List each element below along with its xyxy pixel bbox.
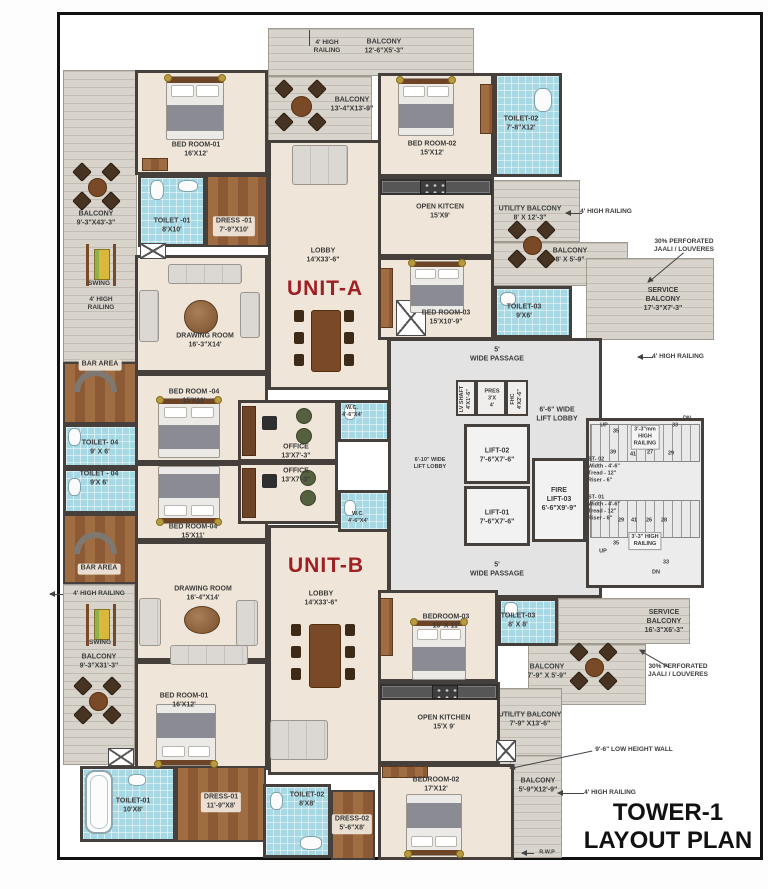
leader-line-3 (50, 594, 63, 595)
bed-4 (158, 398, 220, 458)
chair-36 (262, 474, 277, 488)
bar-27 (74, 528, 126, 554)
rtable-13 (514, 227, 548, 261)
leader-line-4 (558, 793, 584, 794)
fixture-50 (344, 404, 356, 420)
bar-26 (74, 366, 126, 392)
label-30-perforated: 30% PERFORATED JAALI / LOUVERES (648, 663, 708, 679)
balcony-left-unit-a (63, 70, 137, 362)
dtable-9 (303, 306, 347, 374)
leader-line-2 (638, 357, 653, 358)
bed-1 (166, 76, 224, 140)
fire-lift-room (532, 458, 586, 542)
wood-43 (142, 158, 168, 171)
bed-6 (156, 704, 216, 766)
sofa-21 (139, 598, 161, 646)
bed-5 (158, 466, 220, 524)
plan-title: TOWER-1 LAYOUT PLAN (578, 799, 758, 856)
fixture-57 (300, 836, 322, 850)
gchair-37 (296, 408, 312, 424)
service-balcony-a (586, 258, 714, 340)
sofa-25 (270, 720, 328, 760)
balcony-top-rail (268, 28, 474, 76)
sofa-22 (236, 600, 258, 646)
tub-28 (85, 770, 113, 834)
plan-title-line1: TOWER-1 (578, 799, 758, 827)
bed-7 (406, 794, 462, 856)
dress-01-b (176, 766, 266, 842)
gchair-39 (300, 470, 316, 486)
leader-line-9 (522, 853, 534, 854)
label-9-6-low-height-wall: 9'-6" LOW HEIGHT WALL (595, 746, 673, 754)
fixture-47 (178, 180, 198, 192)
desk-33 (242, 406, 256, 456)
sofa-16 (168, 264, 242, 284)
floor-plan-canvas: 4' HIGH RAILINGBALCONY 12'-6"X5'-3"BALCO… (0, 0, 768, 889)
bed-3 (410, 261, 464, 313)
desk-34 (242, 468, 256, 518)
stair-treads-upper (590, 424, 700, 462)
rtable-11 (281, 86, 319, 124)
fixture-53 (68, 478, 81, 496)
stove-32 (432, 685, 458, 699)
chair-35 (262, 416, 277, 430)
swing-30 (86, 604, 116, 646)
gchair-40 (300, 490, 316, 506)
pres-shaft (476, 380, 506, 416)
stair-treads-lower (590, 500, 700, 538)
plan-title-line2: LAYOUT PLAN (578, 827, 758, 855)
circle-19 (184, 300, 218, 334)
sofa-17 (139, 290, 159, 342)
leader-line-8 (309, 30, 310, 46)
label-4-high-railing: 4' HIGH RAILING (580, 208, 632, 216)
gchair-38 (296, 428, 312, 444)
label-4-high-railing: 4' HIGH RAILING (584, 789, 636, 797)
fixture-46 (150, 180, 164, 200)
bed-8 (412, 620, 466, 680)
dress-02-b (331, 790, 375, 860)
fixture-48 (534, 88, 552, 112)
toilet-02-a (494, 73, 562, 177)
dtable-10 (300, 620, 348, 690)
sofa-24 (292, 145, 348, 185)
wood-44 (380, 598, 393, 656)
lv-shaft (456, 380, 476, 416)
lift-01-room (464, 486, 530, 546)
label-4-high-railing: 4' HIGH RAILING (652, 353, 704, 361)
fixture-51 (344, 500, 356, 516)
fixture-55 (128, 774, 146, 786)
duct-3 (108, 748, 134, 766)
lift-02-room (464, 424, 530, 484)
service-balcony-b (558, 598, 690, 644)
rtable-12 (79, 169, 113, 203)
fixture-52 (68, 428, 81, 446)
label-30-perforated: 30% PERFORATED JAALI / LOUVERES (654, 238, 714, 254)
circle-23 (184, 606, 220, 634)
leader-line-1 (566, 213, 582, 214)
bed-2 (398, 78, 454, 136)
stove-31 (420, 180, 446, 194)
duct-4 (496, 740, 516, 762)
sofa-20 (170, 645, 248, 665)
rtable-14 (80, 683, 114, 717)
fhc-shaft (506, 380, 528, 416)
wood-42 (380, 268, 393, 328)
balcony-bottom-b (510, 755, 562, 858)
fixture-49 (500, 292, 516, 306)
dress-01-a (206, 175, 268, 247)
wood-45 (382, 766, 428, 778)
duct-2 (140, 243, 166, 259)
rtable-15 (576, 649, 610, 683)
swing-29 (86, 244, 116, 286)
fixture-54 (504, 602, 518, 616)
sofa-18 (240, 292, 260, 338)
fixture-56 (270, 792, 283, 810)
floor-plan: 4' HIGH RAILINGBALCONY 12'-6"X5'-3"BALCO… (0, 0, 768, 889)
wood-41 (480, 84, 493, 134)
